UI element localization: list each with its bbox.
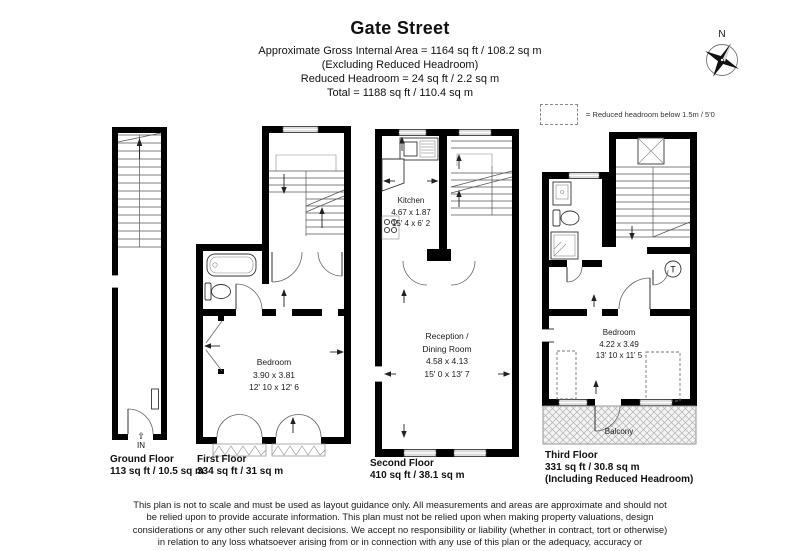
- excluding-line: (Excluding Reduced Headroom): [0, 58, 800, 72]
- hall-doors: [272, 252, 342, 282]
- stair-direction-arrow: [137, 138, 143, 159]
- staircase: [269, 155, 344, 236]
- radiator: [152, 389, 159, 409]
- reception-label: Reception / Dining Room 4.58 x 4.13 15' …: [402, 330, 492, 380]
- third-floor-plan: T: [542, 132, 698, 454]
- disclaimer-text: This plan is not to scale and must be us…: [130, 499, 670, 551]
- ground-floor-plan: [112, 127, 167, 442]
- third-bedroom-label: Bedroom 4.22 x 3.49 13' 10 x 11' 5: [574, 327, 664, 362]
- sink: [553, 182, 571, 205]
- stair-arrow: [629, 226, 634, 240]
- wall-jog: [375, 366, 382, 382]
- landing-doors: [403, 261, 475, 285]
- window: [569, 173, 599, 179]
- balcony-label: Balcony: [579, 426, 659, 438]
- entrance-in-label: ⇧ IN: [126, 432, 156, 450]
- kitchen-sink: [400, 138, 438, 160]
- header: Gate Street Approximate Gross Internal A…: [0, 18, 800, 100]
- opening-arrow: [281, 289, 286, 307]
- legend-label: = Reduced headroom below 1.5m / 5'0: [586, 110, 715, 119]
- skylight: [638, 138, 664, 164]
- tank-indicator: T: [670, 265, 676, 275]
- reduced-headroom-swatch: [540, 104, 578, 125]
- staircase: [451, 141, 512, 215]
- first-floor-plan: [196, 126, 352, 458]
- bathroom-door: [567, 267, 582, 282]
- floorplan-page: Gate Street Approximate Gross Internal A…: [0, 0, 800, 551]
- closet-doors: [204, 316, 224, 374]
- kitchen-label: Kitchen 4.67 x 1.87 15' 4 x 6' 2: [378, 195, 444, 230]
- second-floor-plan: [375, 129, 519, 459]
- legend: = Reduced headroom below 1.5m / 5'0: [540, 103, 715, 125]
- bathtub: [207, 254, 256, 276]
- second-floor-label: Second Floor 410 sq ft / 38.1 sq m: [370, 458, 465, 482]
- third-floor-label: Third Floor 331 sq ft / 30.8 sq m (Inclu…: [545, 450, 693, 486]
- bedroom-door: [619, 278, 650, 309]
- toilet: [553, 210, 579, 226]
- reduced-headroom-line: Reduced Headroom = 24 sq ft / 2.2 sq m: [0, 72, 800, 86]
- entrance-arrow-icon: ⇧: [126, 432, 156, 441]
- ground-floor-label: Ground Floor 113 sq ft / 10.5 sq m: [110, 454, 204, 478]
- compass-rose-icon: N: [698, 24, 746, 82]
- gross-area-line: Approximate Gross Internal Area = 1164 s…: [0, 44, 800, 58]
- tank-cupboard: T: [653, 261, 681, 285]
- french-doors: [217, 415, 321, 438]
- toilet: [205, 283, 231, 300]
- opening-arrow: [591, 294, 596, 307]
- page-title: Gate Street: [0, 18, 800, 39]
- bathroom-door: [236, 284, 262, 309]
- in-text: IN: [137, 441, 145, 450]
- total-line: Total = 1188 sq ft / 110.4 sq m: [0, 86, 800, 100]
- bedroom-arrow: [593, 380, 598, 394]
- wall-arrow-right: [330, 349, 344, 354]
- staircase: [616, 167, 690, 237]
- wall-jog: [112, 275, 118, 288]
- first-floor-label: First Floor 334 sq ft / 31 sq m: [197, 454, 283, 478]
- wall-jog: [542, 329, 554, 342]
- window: [283, 127, 318, 133]
- shower: [551, 232, 578, 259]
- north-label: N: [718, 29, 725, 40]
- kitchen-counter: [382, 159, 404, 191]
- first-bedroom-label: Bedroom 3.90 x 3.81 12' 10 x 12' 6: [228, 356, 320, 394]
